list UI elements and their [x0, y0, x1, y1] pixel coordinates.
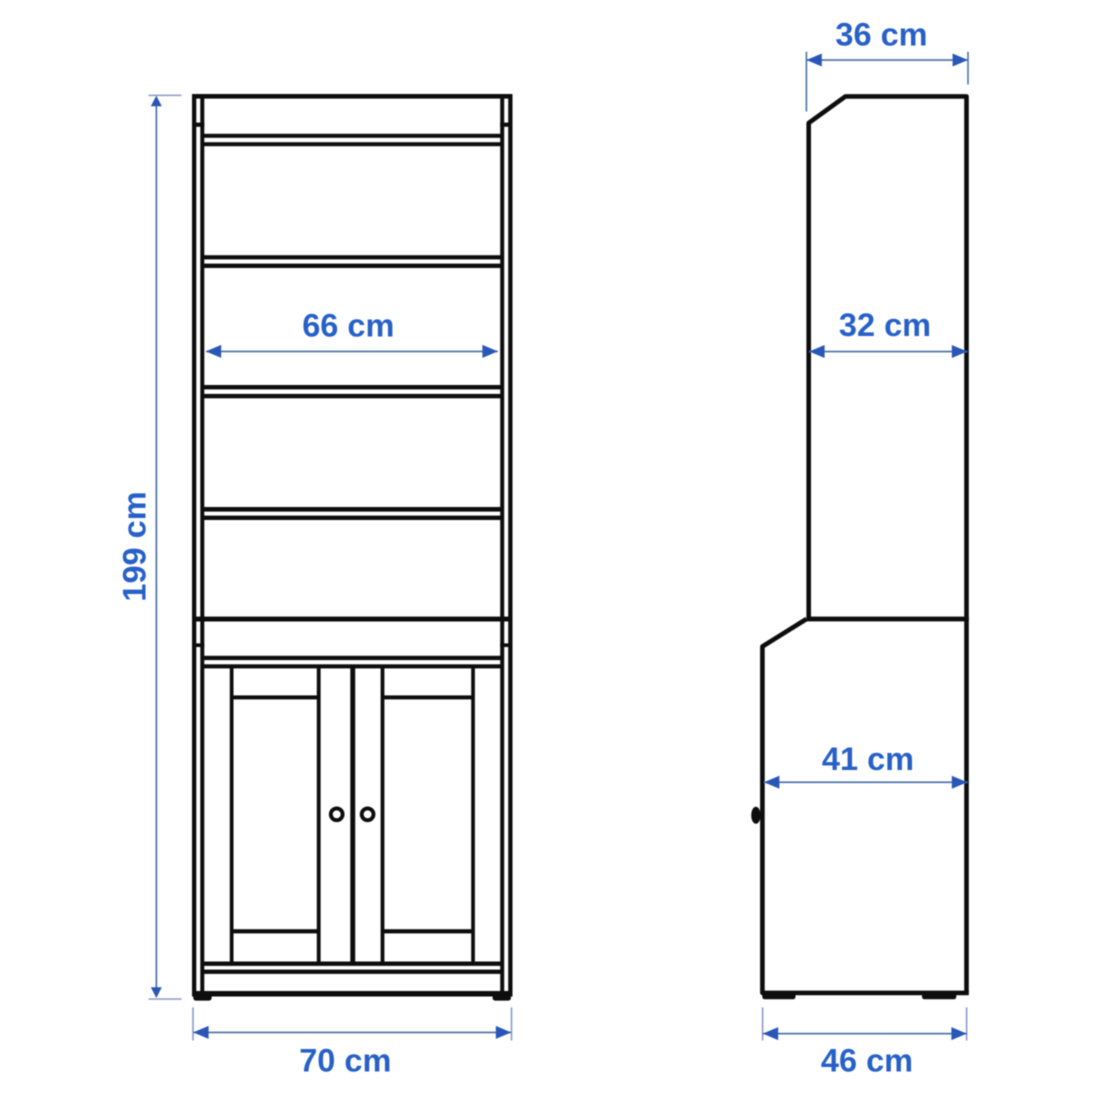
svg-text:199 cm: 199 cm	[117, 491, 153, 601]
svg-text:66 cm: 66 cm	[302, 308, 394, 344]
svg-text:46 cm: 46 cm	[821, 1043, 913, 1079]
svg-text:41 cm: 41 cm	[822, 741, 914, 777]
svg-text:36 cm: 36 cm	[835, 17, 927, 53]
svg-text:70 cm: 70 cm	[299, 1043, 391, 1079]
svg-text:32 cm: 32 cm	[839, 307, 931, 343]
